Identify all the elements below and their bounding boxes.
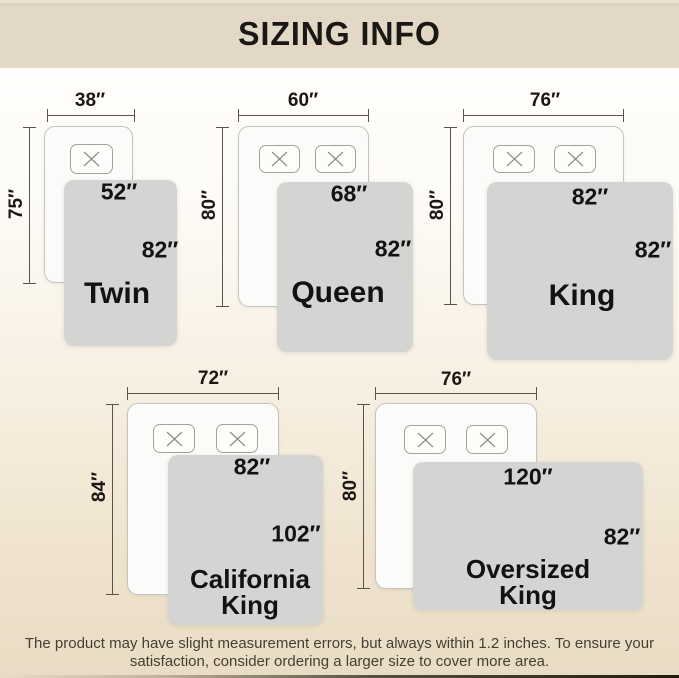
blanket-width-label: 120″ (503, 464, 552, 491)
blanket-length-label: 82″ (604, 524, 641, 551)
mattress-width-label: 76″ (530, 90, 560, 112)
mattress-length-label: 75″ (6, 189, 28, 219)
pillow-icon (216, 424, 258, 453)
pillow-icon (404, 425, 446, 454)
page-title: SIZING INFO (238, 15, 441, 53)
blanket-length-label: 82″ (635, 237, 672, 264)
header-banner: SIZING INFO (0, 0, 679, 68)
pillow-icon (466, 425, 508, 454)
blanket (277, 182, 413, 352)
mattress-length-label: 84″ (89, 472, 111, 502)
mattress-width-label: 38″ (75, 90, 105, 112)
size-name-label: Twin (84, 277, 150, 311)
sizing-info-infographic: SIZING INFO 38″ 75″ 52″ 82″ Twin 60″ 80″ (0, 0, 679, 678)
blanket-length-label: 102″ (271, 521, 320, 548)
pillow-icon (315, 145, 356, 173)
disclaimer-line-1: The product may have slight measurement … (0, 635, 679, 654)
pillow-icon (493, 145, 535, 173)
mattress-length-label: 80″ (340, 471, 362, 501)
mattress-width-label: 72″ (198, 368, 228, 390)
mattress-length-label: 80″ (427, 190, 449, 220)
blanket-width-label: 82″ (572, 184, 609, 211)
mattress-width-label: 76″ (441, 369, 471, 391)
blanket-width-label: 82″ (234, 454, 271, 481)
size-name-label: King (549, 279, 616, 313)
mattress-width-label: 60″ (288, 90, 318, 112)
pillow-icon (70, 144, 113, 174)
blanket-width-label: 52″ (101, 179, 138, 206)
blanket-length-label: 82″ (375, 236, 412, 263)
pillow-icon (259, 145, 300, 173)
mattress-length-label: 80″ (199, 190, 221, 220)
size-name-label: California King (175, 566, 325, 618)
pillow-icon (153, 424, 195, 453)
blanket-width-label: 68″ (331, 181, 368, 208)
blanket-length-label: 82″ (142, 237, 179, 264)
pillow-icon (554, 145, 596, 173)
size-name-label: Oversized King (453, 556, 603, 608)
disclaimer-line-2: satisfaction, consider ordering a larger… (0, 653, 679, 672)
size-name-label: Queen (291, 276, 384, 310)
measurement-disclaimer: The product may have slight measurement … (0, 635, 679, 673)
